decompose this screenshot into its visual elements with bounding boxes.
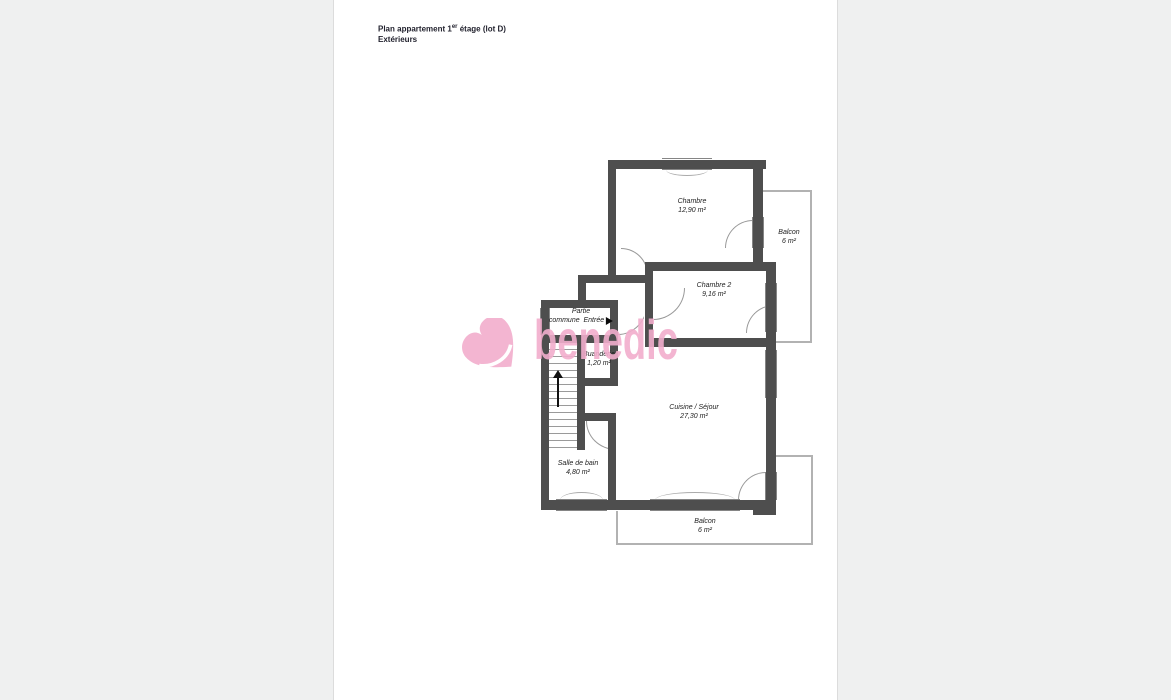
balcony-bottom-south-edge bbox=[616, 543, 813, 545]
room-name-2: commune bbox=[549, 317, 580, 324]
room-label-buanderie: Buanderie 1,20 m² bbox=[583, 350, 615, 369]
balcony-top-south-edge bbox=[776, 341, 812, 343]
room-label-balcon-haut: Balcon 6 m² bbox=[778, 228, 799, 247]
room-name: Chambre bbox=[678, 197, 707, 206]
room-label-balcon-bas: Balcon 6 m² bbox=[694, 517, 715, 536]
balcony-top-east-edge bbox=[810, 190, 812, 343]
room-area: 12,90 m² bbox=[678, 206, 707, 215]
room-label-partie-commune: Partie commune Entrée bbox=[549, 307, 613, 326]
door-arc-cuisine-balcony bbox=[738, 472, 766, 500]
room-name: Cuisine / Séjour bbox=[669, 403, 718, 412]
wall-chambre-right bbox=[753, 160, 763, 263]
door-arc-chambre bbox=[621, 248, 648, 275]
room-label-chambre2: Chambre 2 9,16 m² bbox=[697, 281, 732, 300]
room-area: 9,16 m² bbox=[697, 290, 732, 299]
room-name: Chambre 2 bbox=[697, 281, 732, 290]
balcony-bottom-west-edge bbox=[616, 511, 618, 545]
room-name: Balcon bbox=[778, 228, 799, 237]
entrance-line: commune Entrée bbox=[549, 316, 613, 325]
balcony-bottom-north-edge bbox=[776, 455, 813, 457]
room-area: 4,80 m² bbox=[558, 468, 598, 477]
wall-sdb-right bbox=[608, 413, 616, 510]
room-label-chambre: Chambre 12,90 m² bbox=[678, 197, 707, 216]
floor-plan: Chambre 12,90 m² Balcon 6 m² Chambre 2 9… bbox=[0, 0, 1171, 700]
room-label-salle-de-bain: Salle de bain 4,80 m² bbox=[558, 459, 598, 478]
room-name: Salle de bain bbox=[558, 459, 598, 468]
room-area: 1,20 m² bbox=[583, 359, 615, 368]
wall-bottom bbox=[541, 500, 776, 510]
screenshot-canvas: Plan appartement 1er étage (lot D) Extér… bbox=[0, 0, 1171, 700]
entrance-arrow-icon bbox=[606, 317, 613, 325]
balcony-bottom-east-edge bbox=[811, 455, 813, 545]
wall-partie-bottom bbox=[541, 335, 618, 343]
door-arc-chambre2 bbox=[653, 288, 685, 320]
wall-chambre-top bbox=[608, 160, 766, 169]
window-sill-bow bbox=[666, 170, 708, 176]
room-area: 27,30 m² bbox=[669, 412, 718, 421]
door-arc-chambre-balcony bbox=[725, 220, 753, 248]
room-name: Buanderie bbox=[583, 350, 615, 359]
entrance-label: Entrée bbox=[584, 317, 605, 324]
arrow-shaft bbox=[557, 376, 559, 407]
wall-chambre-left bbox=[608, 160, 616, 283]
room-area: 6 m² bbox=[694, 526, 715, 535]
wall-chambre2-top bbox=[645, 262, 776, 271]
wall-cuisine-top bbox=[645, 338, 776, 347]
balcony-top-north-edge bbox=[762, 190, 812, 192]
room-name: Balcon bbox=[694, 517, 715, 526]
room-name: Partie bbox=[549, 307, 613, 316]
stairs-direction-arrow bbox=[553, 370, 563, 408]
wall-left-outer bbox=[541, 300, 549, 510]
wall-right-outer bbox=[766, 262, 776, 510]
room-label-cuisine-sejour: Cuisine / Séjour 27,30 m² bbox=[669, 403, 718, 422]
arrow-head bbox=[553, 370, 563, 378]
room-area: 6 m² bbox=[778, 237, 799, 246]
